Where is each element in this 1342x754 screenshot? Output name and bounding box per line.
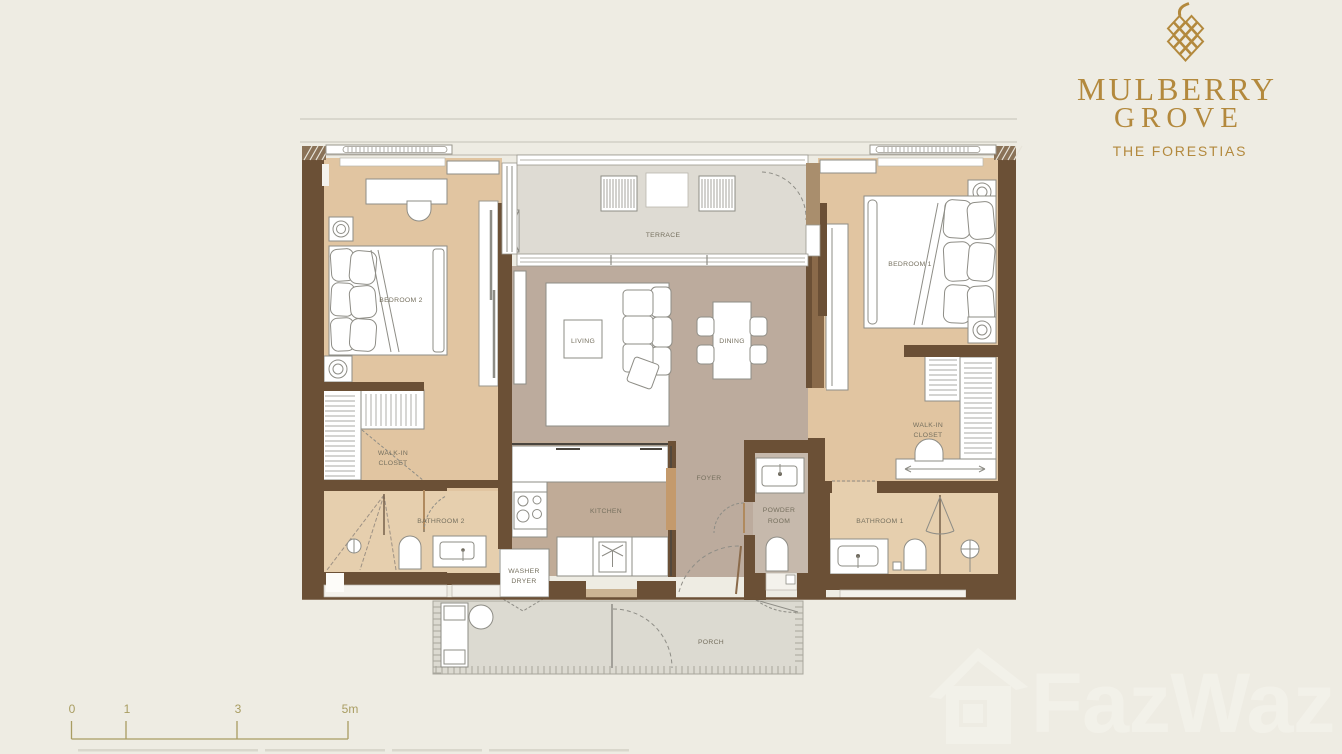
svg-text:FOYER: FOYER — [697, 475, 722, 482]
svg-text:BEDROOM 1: BEDROOM 1 — [888, 261, 932, 268]
svg-text:WASHER: WASHER — [508, 568, 539, 575]
svg-text:PORCH: PORCH — [698, 639, 724, 646]
svg-text:THE FORESTIAS: THE FORESTIAS — [1113, 143, 1248, 159]
svg-text:TERRACE: TERRACE — [646, 232, 681, 239]
svg-text:5m: 5m — [342, 702, 359, 716]
svg-text:LIVING: LIVING — [571, 338, 595, 345]
svg-text:3: 3 — [235, 702, 242, 716]
svg-text:KITCHEN: KITCHEN — [590, 508, 622, 515]
svg-text:DINING: DINING — [719, 338, 745, 345]
svg-text:BEDROOM 2: BEDROOM 2 — [379, 297, 423, 304]
svg-text:DRYER: DRYER — [511, 578, 536, 585]
svg-text:0: 0 — [69, 702, 76, 716]
svg-text:1: 1 — [124, 702, 131, 716]
svg-text:GROVE: GROVE — [1114, 102, 1244, 134]
svg-text:CLOSET: CLOSET — [914, 432, 943, 439]
svg-text:FazWaz: FazWaz — [1031, 656, 1335, 750]
svg-text:CLOSET: CLOSET — [379, 460, 408, 467]
svg-text:WALK-IN: WALK-IN — [378, 450, 408, 457]
svg-text:WALK-IN: WALK-IN — [913, 422, 943, 429]
svg-text:BATHROOM 2: BATHROOM 2 — [417, 518, 464, 525]
svg-text:BATHROOM 1: BATHROOM 1 — [856, 518, 903, 525]
svg-text:ROOM: ROOM — [768, 518, 790, 525]
svg-text:POWDER: POWDER — [763, 507, 795, 514]
